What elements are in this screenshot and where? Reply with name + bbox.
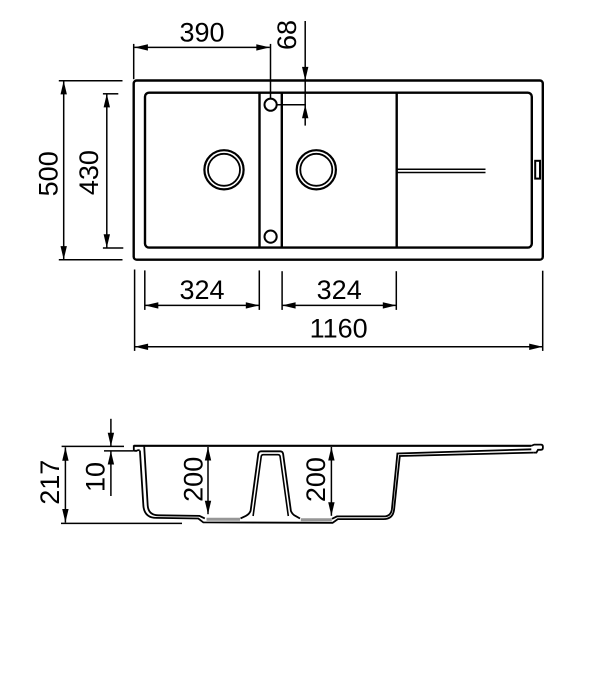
svg-text:217: 217 bbox=[35, 460, 65, 505]
svg-text:390: 390 bbox=[179, 17, 224, 47]
svg-text:324: 324 bbox=[317, 275, 362, 305]
svg-text:500: 500 bbox=[33, 151, 63, 196]
svg-text:430: 430 bbox=[74, 150, 104, 195]
svg-text:200: 200 bbox=[179, 457, 209, 502]
svg-text:68: 68 bbox=[272, 20, 302, 50]
svg-text:1160: 1160 bbox=[310, 313, 368, 343]
svg-text:10: 10 bbox=[81, 462, 111, 492]
svg-text:324: 324 bbox=[179, 275, 224, 305]
svg-text:200: 200 bbox=[301, 457, 331, 502]
